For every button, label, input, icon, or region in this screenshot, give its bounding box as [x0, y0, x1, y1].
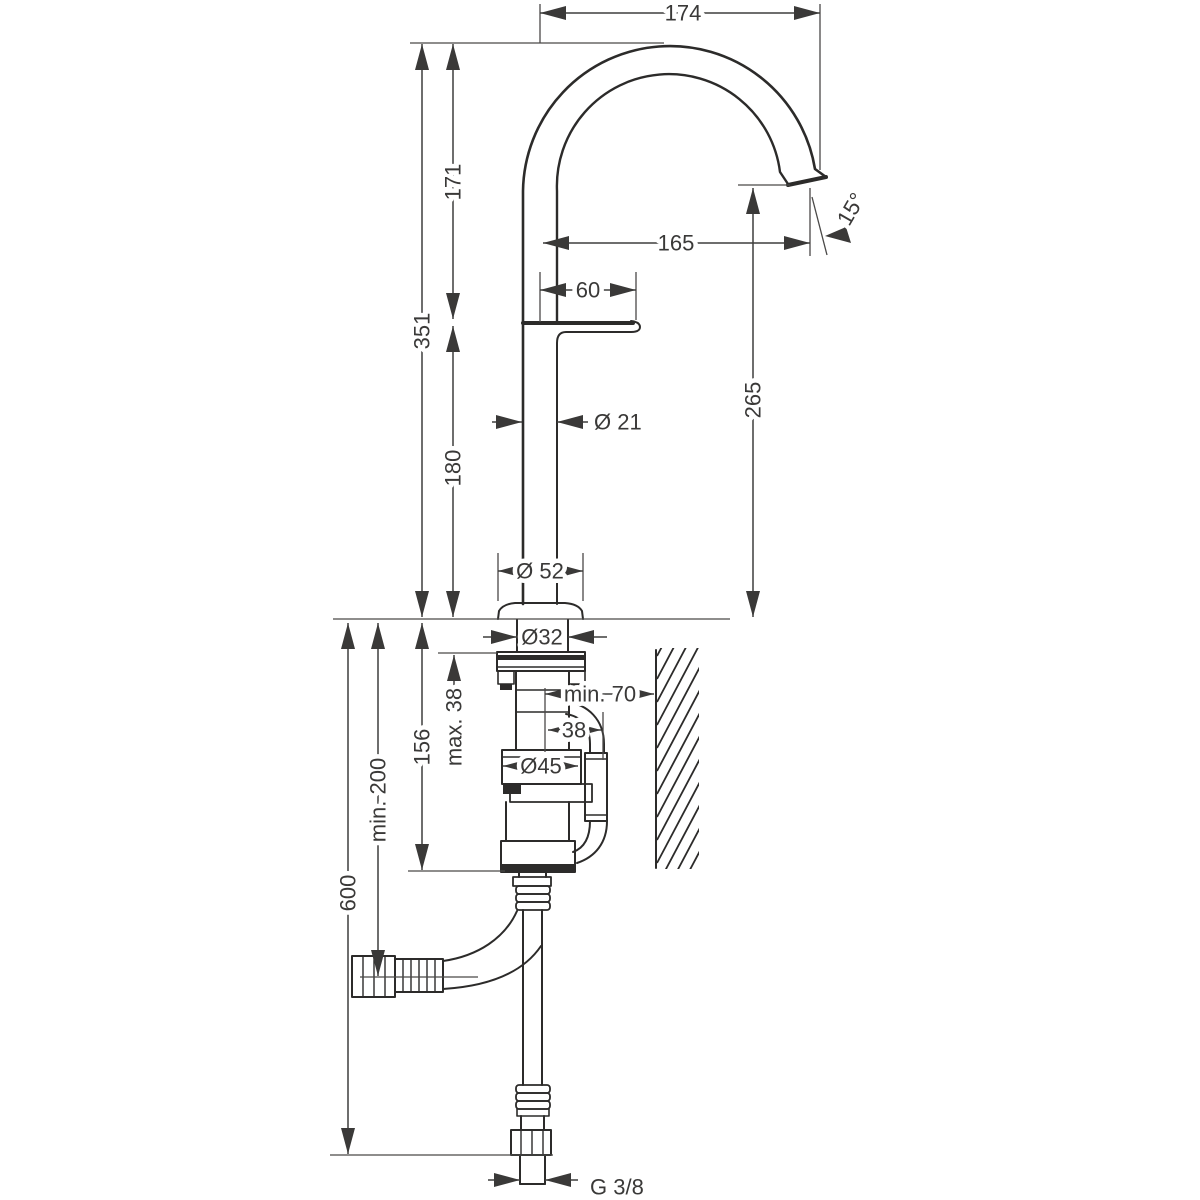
dim-label-valve-depth: 156 — [410, 729, 435, 766]
wall-section — [656, 571, 702, 955]
dim-label-pipe-diameter: Ø 21 — [594, 410, 642, 435]
angle-leader-arrowhead — [825, 227, 851, 243]
dim-label-offset-38: 38 — [562, 718, 586, 743]
dim-label-wall-clearance: min. 70 — [564, 682, 636, 707]
handle-underside-and-pipe — [557, 321, 640, 604]
dim-label-hose-length: 600 — [336, 875, 361, 912]
bracket-bar — [510, 784, 592, 802]
base-flange — [498, 603, 583, 619]
mounting-plate — [497, 652, 585, 671]
dim-label-spout-rise: 171 — [441, 164, 466, 201]
spout-mouth — [788, 177, 826, 185]
dim-label-handle-length: 60 — [576, 278, 600, 303]
dim-label-base-diameter: Ø 52 — [516, 559, 564, 584]
dim-label-thread-size: G 3/8 — [590, 1175, 644, 1200]
spout-outer-contour — [523, 46, 826, 604]
dim-label-spout-reach: 165 — [658, 231, 695, 256]
dim-label-shank-diameter: Ø32 — [521, 625, 563, 650]
wall-hatching — [657, 571, 702, 955]
arrowheads — [341, 6, 851, 1187]
dim-label-outlet-angle: 15° — [832, 188, 870, 229]
technical-drawing-canvas: 174 165 60 Ø 21 Ø 52 Ø32 min. 70 38 Ø45 … — [0, 0, 1200, 1200]
faucet-outline — [498, 46, 826, 619]
faucet-technical-drawing-page: 174 165 60 Ø 21 Ø 52 Ø32 min. 70 38 Ø45 … — [0, 0, 1200, 1200]
hose-hex-nut — [511, 1130, 551, 1155]
dim-label-outlet-height: 265 — [741, 382, 766, 419]
supply-hose-down — [511, 877, 551, 1184]
dim-label-height-to-top: 351 — [410, 313, 435, 350]
dimension-labels: 174 165 60 Ø 21 Ø 52 Ø32 min. 70 38 Ø45 … — [336, 1, 871, 1200]
dim-label-valve-diameter: Ø45 — [520, 754, 562, 779]
hose-sleeve — [585, 753, 607, 821]
dim-label-body-height: 180 — [441, 450, 466, 487]
angle-reference-line — [812, 197, 827, 255]
dim-label-deck-thickness: max. 38 — [442, 688, 467, 766]
dim-label-spout-width: 174 — [665, 1, 702, 26]
dim-label-hose-clearance: min. 200 — [366, 758, 391, 842]
